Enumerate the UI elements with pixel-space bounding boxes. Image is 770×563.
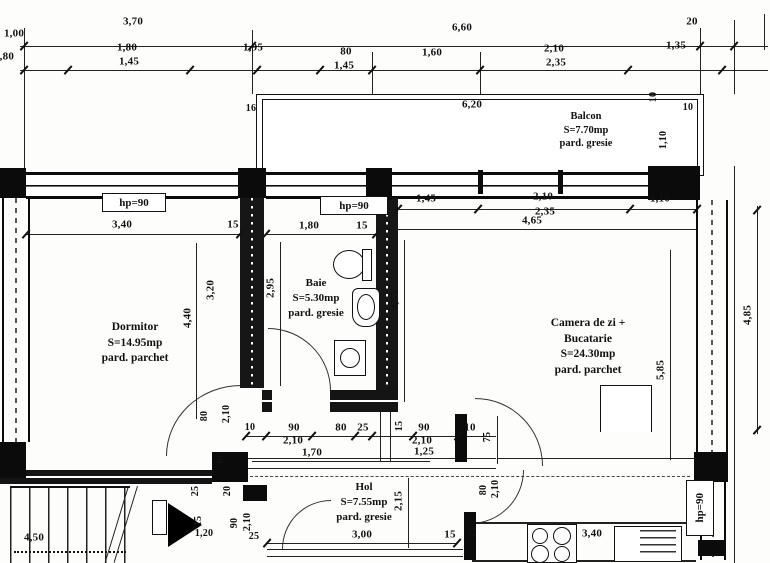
dim-label: 20 [223,486,233,496]
dim-label: 80 [335,423,346,434]
wall-baie-bottom-jamb [262,390,272,412]
dim-label: 90 [288,423,299,434]
dim-label: 2,35 [546,58,566,69]
wall-line [390,412,391,462]
dim-line [757,206,758,434]
dim-label: 1,25 [414,447,434,458]
room-floor: pard. parchet [102,351,169,367]
parapet-label: hp=90 [339,200,369,212]
door-arc-baie [268,328,331,391]
wall-dormitor-baie [240,198,264,388]
dim-label: 25 [249,532,259,542]
parapet-label: hp=90 [119,197,149,209]
dim-label: 3,40 [112,220,132,231]
stair-step-marks [14,551,126,553]
dim-label: 4,50 [24,533,44,544]
dim-label: 80 [479,485,489,495]
room-label-camera: Camera de zi + Bucatarie S=24.30mp pard.… [528,316,648,378]
dim-label: 75 [483,432,493,442]
window-mullion [478,170,483,194]
dim-label: 1,00 [4,29,24,40]
dim-label: 2,10 [491,480,501,498]
dim-line [497,416,498,464]
wall-block [698,540,724,556]
dim-label: 3,20 [206,280,217,300]
room-floor: pard. gresie [288,306,343,321]
wall-dormitor-bottom [0,470,212,484]
dim-label: 10 [683,103,693,113]
column [0,442,26,478]
dim-label: 6,20 [462,100,482,111]
wall-line [246,468,496,469]
column [238,168,266,198]
room-floor: pard. parchet [555,363,622,379]
dim-label: 1,10 [650,194,670,205]
dim-label: 6,60 [452,23,472,34]
extension-line [24,28,25,170]
room-floor: pard. gresie [560,137,613,151]
dim-line [26,234,240,235]
dim-label: 80 [200,411,210,421]
extension-line [480,52,481,94]
room-name: Dormitor [112,320,159,336]
dim-label: 2,10 [544,44,564,55]
dim-line [670,250,671,460]
column [0,168,26,198]
kitchen-counter-line [472,522,696,524]
wall-pier [600,385,652,432]
stove-burner-icon [553,527,571,545]
extension-line [372,52,373,94]
dim-line [20,70,768,71]
dim-label: 80 [340,47,351,58]
room-area: S=14.95mp [108,336,163,352]
wall-outer-line [734,166,735,563]
extension-line [734,20,735,94]
dim-label: 15 [194,516,204,526]
dim-line [404,240,405,402]
dim-label: 1,80 [117,43,137,54]
wall-hol-bottom [267,549,463,550]
dim-label: 1,35 [666,41,686,52]
room-name: Balcon [571,110,602,124]
dim-label: 2,15 [394,491,405,511]
parapet-label-box: hp=90 [686,480,714,536]
dim-label: 1,45 [119,57,139,68]
extension-line [252,30,253,94]
dim-label: 1,45 [416,194,436,205]
dim-label: 4,85 [743,305,754,325]
dim-label: 10 [245,423,255,433]
dim-line [398,229,697,230]
dim-label: 3,00 [352,530,372,541]
dim-label: 1,80 [0,52,14,63]
parapet-label: hp=90 [694,493,706,523]
dim-label: 2,10 [243,513,253,531]
dim-label: 1,20 [195,529,213,539]
room-area: S=5.30mp [293,291,340,306]
dim-label: 3,70 [123,17,143,28]
parapet-label-box: hp=90 [102,193,166,212]
extension-line [764,14,765,50]
dim-label: 10 [649,92,659,102]
stove-burner-icon [532,528,548,544]
dim-line [267,543,457,544]
dim-label: 1,45 [334,61,354,72]
dim-label: 2,10 [283,436,303,447]
room-area: S=7.70mp [564,124,609,138]
dim-line [266,234,376,235]
column [694,452,728,482]
dim-label: 10 [464,423,475,434]
parapet-label-box: hp=90 [320,196,388,215]
dim-label: 30 [217,455,227,465]
room-name: Camera de zi + [551,316,626,332]
room-name: Bucatarie [564,332,612,348]
dim-label: 1,70 [302,448,322,459]
dim-label: 1,80 [299,221,319,232]
floor-plan: 1,00 3,70 6,60 20 1,80 1,80 1,45 1,95 80… [0,0,770,563]
dim-label: 2,10 [222,405,232,423]
wall-line [380,412,381,462]
toilet-icon [333,250,365,279]
washing-machine-drum-icon [340,348,360,368]
dim-label: 90 [418,423,429,434]
right-exterior-wall [696,200,728,452]
dim-label: 75 [469,527,479,537]
window-mullion [558,170,563,194]
window-baie [266,172,366,199]
dim-label: 1,95 [243,43,263,54]
dim-label: 25 [357,423,368,434]
dim-label: 90 [230,518,240,528]
dim-label: 1,60 [422,48,442,59]
dim-label: 4,65 [522,216,542,227]
room-area: S=24.30mp [561,347,616,363]
door-jamb [243,485,267,501]
room-area: S=7.55mp [341,495,388,510]
dim-label: 3,40 [582,529,602,540]
dim-label: 15 [227,220,238,231]
room-label-dormitor: Dormitor S=14.95mp pard. parchet [75,320,195,367]
room-label-balcon: Balcon S=7.70mp pard. gresie [530,110,642,151]
entrance-door-leaf [152,500,167,535]
dim-line [252,461,430,462]
dim-label: 20 [686,17,697,28]
dim-label: 5,85 [656,360,667,380]
dim-label: 15 [356,221,367,232]
room-floor: pard. gresie [336,510,391,525]
stove-burner-icon [531,545,549,563]
dim-label: 25 [191,486,201,496]
room-label-baie: Baie S=5.30mp pard. gresie [266,276,366,321]
dim-label: 15 [444,530,455,541]
dim-label: 2,10 [533,192,553,203]
wall-baie-bottom [330,390,398,412]
dim-line [196,243,197,419]
dim-label: 15 [395,421,405,431]
room-name: Baie [306,276,327,291]
stove-burner-icon [554,546,570,562]
kitchen-sink-icon [614,526,682,562]
dim-label: 3,55 [390,290,401,310]
dim-label: 16 [246,104,256,114]
extension-line [700,28,701,94]
wall-hol-bottom [267,556,463,557]
dim-label: 1,10 [659,131,669,149]
room-name: Hol [355,480,372,495]
